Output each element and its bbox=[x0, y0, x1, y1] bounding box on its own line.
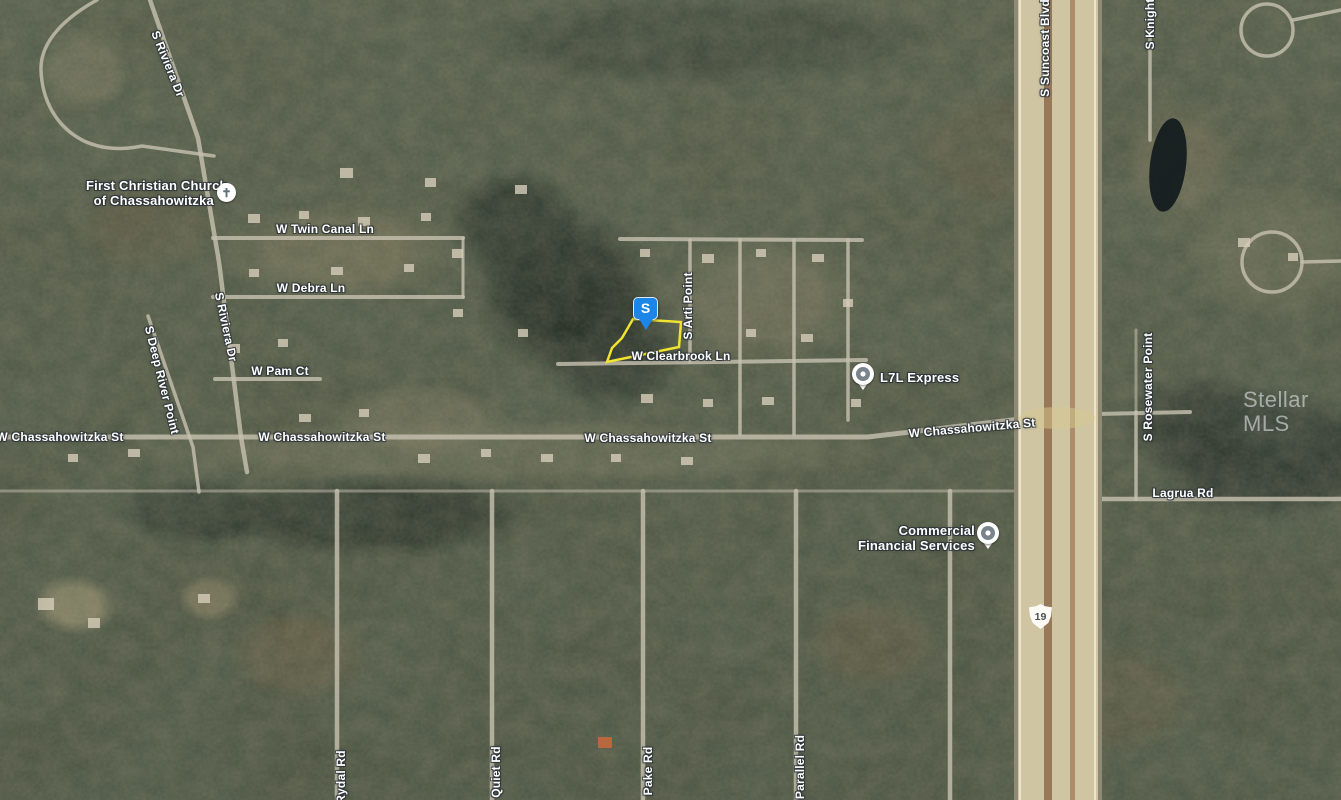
road-label-s-arti-point: S Arti Point bbox=[681, 272, 695, 339]
business-pin-icon-l7l[interactable] bbox=[852, 363, 874, 394]
satellite-map[interactable]: W Twin Canal Ln W Debra Ln W Pam Ct W Cl… bbox=[0, 0, 1341, 800]
business-pin-icon-cfs[interactable] bbox=[977, 522, 999, 553]
road-label-w-chassahowitzka-st-3: W Chassahowitzka St bbox=[584, 431, 711, 445]
subject-marker-tail bbox=[639, 319, 653, 337]
road-label-quiet-rd: Quiet Rd bbox=[489, 746, 503, 798]
subject-property-marker[interactable]: S bbox=[633, 297, 658, 334]
road-label-w-chassahowitzka-st-1: W Chassahowitzka St bbox=[0, 430, 124, 444]
church-icon[interactable]: ✝ bbox=[217, 183, 236, 202]
road-label-w-twin-canal-ln: W Twin Canal Ln bbox=[276, 222, 374, 236]
subject-marker-label: S bbox=[633, 297, 658, 320]
road-label-w-pam-ct: W Pam Ct bbox=[251, 364, 309, 378]
road-label-s-knight: S Knight bbox=[1143, 0, 1157, 49]
stellar-mls-watermark: Stellar MLS bbox=[1243, 388, 1341, 436]
road-label-s-rosewater-point: S Rosewater Point bbox=[1141, 333, 1155, 442]
parcel-outline[interactable] bbox=[0, 0, 1341, 800]
road-label-pake-rd: Pake Rd bbox=[641, 747, 655, 796]
road-label-w-debra-ln: W Debra Ln bbox=[277, 281, 346, 295]
poi-church-line2: of Chassahowitzka bbox=[86, 194, 214, 209]
road-label-w-clearbrook-ln: W Clearbrook Ln bbox=[631, 349, 730, 363]
poi-church-line1: First Christian Church bbox=[86, 179, 214, 194]
church-cross-glyph: ✝ bbox=[221, 186, 231, 200]
road-label-lagrua-rd: Lagrua Rd bbox=[1152, 486, 1213, 500]
poi-label-commercial-financial-services[interactable]: Commercial Financial Services bbox=[845, 524, 975, 553]
poi-label-first-christian-church[interactable]: First Christian Church of Chassahowitzka bbox=[86, 179, 214, 208]
pin-circle bbox=[977, 522, 999, 544]
road-label-rydal-rd: Rydal Rd bbox=[334, 750, 348, 800]
poi-label-l7l-express[interactable]: L7L Express bbox=[880, 371, 959, 386]
road-label-w-chassahowitzka-st-2: W Chassahowitzka St bbox=[258, 430, 385, 444]
poi-cfs-line1: Commercial bbox=[845, 524, 975, 539]
road-label-s-suncoast-blvd: S Suncoast Blvd bbox=[1038, 0, 1052, 97]
pin-circle bbox=[852, 363, 874, 385]
poi-cfs-line2: Financial Services bbox=[845, 539, 975, 554]
road-label-parallel-rd: Parallel Rd bbox=[793, 735, 807, 799]
